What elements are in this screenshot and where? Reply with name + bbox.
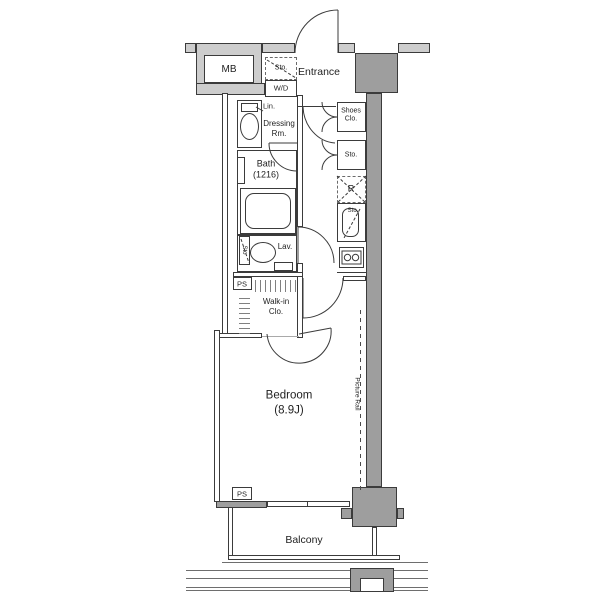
pillar-top-right (355, 53, 398, 93)
east-wall (366, 93, 382, 487)
label-sink-storage: Sto. (348, 208, 359, 214)
label-bedroom-1: Bedroom (266, 390, 313, 402)
wall-top-center (262, 43, 295, 53)
bathtub-inner (245, 193, 291, 229)
label-pipe-space-upper: PS (237, 280, 247, 288)
kitchen-counter-end-line (337, 272, 366, 273)
label-refrigerator: R (348, 185, 355, 194)
label-shoes-closet-2: Clo. (345, 116, 357, 123)
window-center-tick (307, 501, 308, 507)
label-balcony: Balcony (285, 535, 322, 546)
west-wall-upper (222, 93, 228, 337)
label-hall-storage: Sto. (345, 152, 357, 159)
walkin-bottom-wall (214, 333, 262, 338)
entrance-step-line (297, 106, 336, 107)
dressing-door-arc (303, 107, 335, 143)
balcony-west-wall (228, 507, 233, 556)
label-shoes-closet-1: Shoes (341, 108, 361, 115)
bedroom-door-arc (303, 278, 343, 318)
wall-top-left-stub (185, 43, 196, 53)
toilet-bowl (240, 113, 259, 140)
bedroom-north-wall-right (343, 276, 366, 281)
stove-box (339, 247, 364, 268)
closet-hanger-rail-top (255, 280, 297, 292)
shoes-closet-door-arc-top (322, 102, 337, 117)
bedroom-south-wall-solid (216, 501, 267, 508)
closet-hanger-rail-left (239, 296, 250, 334)
label-picture-rail: Picture Rail (353, 377, 360, 410)
label-storage-top: Sto. (275, 65, 287, 72)
label-bedroom-2: (8.9J) (274, 405, 303, 417)
label-dressing-room-2: Rm. (272, 130, 287, 138)
lavatory-door-arc (298, 227, 334, 263)
wall-below-pillar (372, 527, 377, 556)
washbasin (250, 242, 276, 263)
hall-west-wall-a (297, 95, 303, 227)
west-wall-bedroom (214, 330, 220, 502)
toilet-tank (241, 103, 258, 112)
label-lavatory: Lav. (278, 243, 293, 251)
hall-storage-door-arc-bottom (322, 155, 337, 170)
lavatory-counter (274, 262, 293, 271)
label-entrance: Entrance (298, 67, 340, 78)
label-pipe-space-lower: PS (237, 490, 247, 498)
railing-pillar-u-notch (360, 578, 384, 592)
railing-line-1 (222, 562, 428, 563)
wall-under-meter-box (196, 83, 265, 95)
pillar-tab-right (397, 508, 404, 519)
label-walkin-closet-1: Walk-in (263, 298, 289, 306)
walkin-door-leaf (299, 328, 331, 334)
label-bath-1: Bath (257, 160, 276, 169)
label-washer-dryer: W/D (274, 84, 289, 92)
label-lav-storage: Sto (241, 245, 247, 254)
wall-top-right-stub (398, 43, 430, 53)
label-dressing-room-1: Dressing (263, 120, 295, 128)
label-walkin-closet-2: Clo. (269, 308, 283, 316)
label-meter-box: MB (222, 65, 237, 75)
entrance-door-arc (295, 10, 338, 53)
pillar-bottom-right (352, 487, 397, 527)
pillar-tab-left (341, 508, 352, 519)
bath-shower-unit (237, 157, 245, 184)
balcony-window (267, 501, 350, 507)
hall-storage-door-arc-top (322, 140, 337, 155)
shoes-closet-door-arc-bottom (322, 117, 337, 132)
label-linen: Lin. (263, 102, 275, 110)
floor-plan: MB Sto. W/D Entrance Shoes Clo. Sto. Lin… (0, 0, 600, 599)
walkin-door-threshold (262, 336, 299, 337)
label-bath-2: (1216) (253, 171, 279, 180)
wall-top-right-of-door (338, 43, 355, 53)
